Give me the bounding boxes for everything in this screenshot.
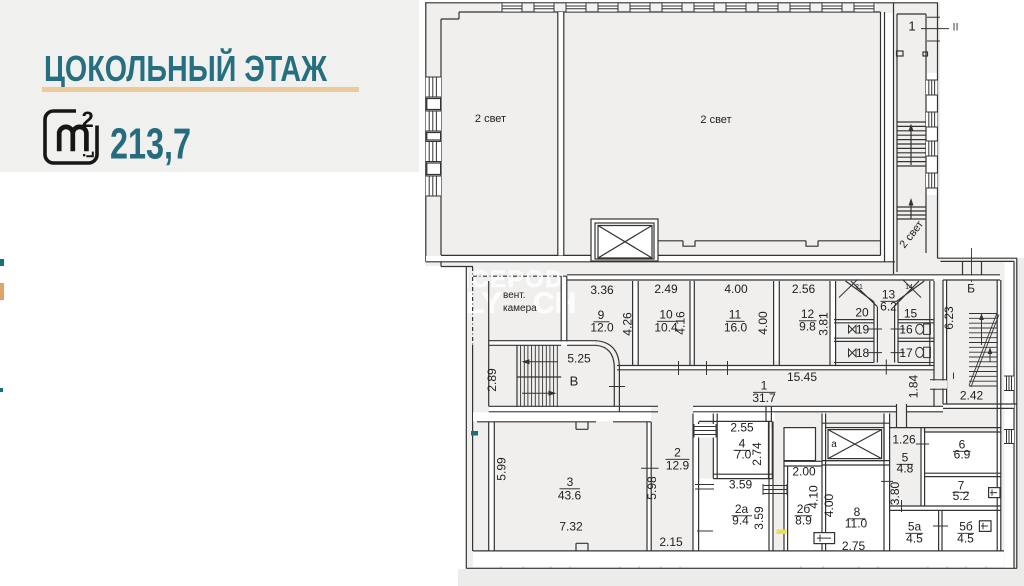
svg-text:5.2: 5.2 bbox=[953, 489, 970, 503]
svg-text:17: 17 bbox=[899, 346, 913, 360]
svg-text:15.45: 15.45 bbox=[787, 370, 817, 384]
svg-text:14: 14 bbox=[905, 284, 913, 291]
svg-text:6.23: 6.23 bbox=[942, 306, 956, 330]
svg-text:16.0: 16.0 bbox=[724, 321, 748, 335]
svg-text:2.15: 2.15 bbox=[659, 535, 683, 549]
svg-text:1: 1 bbox=[908, 19, 915, 34]
svg-text:20: 20 bbox=[855, 306, 869, 320]
svg-text:Б: Б bbox=[967, 282, 975, 296]
svg-text:2.56: 2.56 bbox=[792, 282, 816, 296]
svg-text:4.8: 4.8 bbox=[897, 462, 914, 476]
svg-text:2: 2 bbox=[674, 446, 681, 460]
svg-text:4.16: 4.16 bbox=[674, 311, 688, 335]
svg-text:5.99: 5.99 bbox=[495, 457, 509, 481]
svg-text:2.74: 2.74 bbox=[750, 442, 764, 466]
svg-text:10: 10 bbox=[659, 308, 673, 322]
svg-text:6.9: 6.9 bbox=[954, 448, 971, 462]
svg-text:3.59: 3.59 bbox=[752, 506, 766, 530]
svg-text:3: 3 bbox=[567, 475, 574, 489]
svg-text:21: 21 bbox=[855, 284, 863, 291]
svg-text:2.89: 2.89 bbox=[485, 368, 499, 392]
svg-text:4.00: 4.00 bbox=[724, 282, 748, 296]
svg-text:16: 16 bbox=[899, 323, 913, 337]
svg-text:3.36: 3.36 bbox=[590, 283, 614, 297]
svg-text:CH: CH bbox=[533, 287, 576, 320]
svg-text:ЦОКОЛЬНЫЙ ЭТАЖ: ЦОКОЛЬНЫЙ ЭТАЖ bbox=[44, 47, 327, 89]
svg-text:3.81: 3.81 bbox=[817, 312, 831, 336]
svg-text:2.42: 2.42 bbox=[960, 389, 984, 403]
svg-text:1.84: 1.84 bbox=[906, 374, 920, 398]
svg-text:II: II bbox=[952, 22, 958, 34]
svg-text:4.00: 4.00 bbox=[756, 311, 770, 335]
svg-text:вент.: вент. bbox=[503, 290, 526, 301]
svg-text:5.25: 5.25 bbox=[567, 352, 591, 366]
svg-text:11: 11 bbox=[729, 308, 742, 322]
svg-text:15: 15 bbox=[904, 307, 918, 321]
svg-text:2: 2 bbox=[82, 107, 94, 132]
svg-text:2.55: 2.55 bbox=[730, 421, 754, 435]
svg-text:5.98: 5.98 bbox=[645, 476, 659, 500]
svg-text:18: 18 bbox=[856, 346, 870, 360]
svg-text:2 свет: 2 свет bbox=[475, 113, 506, 125]
svg-text:3.59: 3.59 bbox=[729, 478, 753, 492]
svg-text:2.49: 2.49 bbox=[654, 282, 678, 296]
svg-text:213,7: 213,7 bbox=[110, 120, 191, 169]
svg-text:2.75: 2.75 bbox=[842, 539, 866, 553]
svg-text:1.26: 1.26 bbox=[892, 433, 916, 447]
svg-text:19: 19 bbox=[856, 323, 870, 337]
svg-text:9.8: 9.8 bbox=[799, 320, 816, 334]
svg-text:2 свет: 2 свет bbox=[700, 114, 731, 126]
svg-text:4.00: 4.00 bbox=[822, 493, 836, 517]
svg-text:12.0: 12.0 bbox=[590, 321, 614, 335]
svg-text:3.80: 3.80 bbox=[888, 481, 902, 505]
svg-text:LY: LY bbox=[466, 287, 502, 320]
svg-text:43.6: 43.6 bbox=[558, 489, 582, 503]
svg-text:4.26: 4.26 bbox=[621, 312, 635, 336]
svg-text:2.00: 2.00 bbox=[792, 465, 816, 479]
svg-text:В: В bbox=[570, 374, 579, 389]
svg-text:камера: камера bbox=[503, 303, 537, 314]
svg-text:12.9: 12.9 bbox=[666, 459, 690, 473]
svg-text:31.7: 31.7 bbox=[752, 391, 776, 405]
svg-text:7.32: 7.32 bbox=[559, 520, 583, 534]
svg-text:а: а bbox=[831, 439, 837, 450]
